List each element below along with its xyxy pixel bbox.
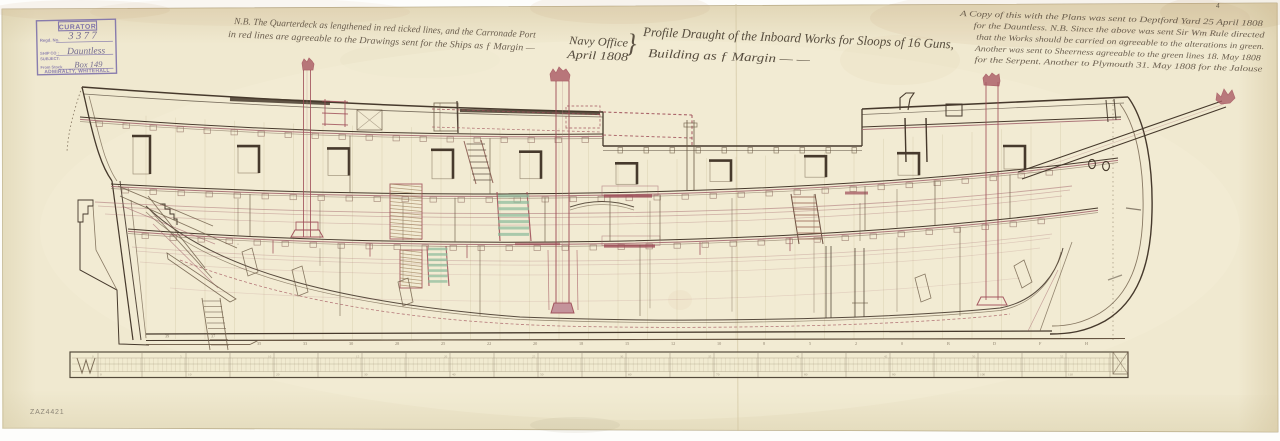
svg-text:55: 55 bbox=[1060, 354, 1064, 358]
svg-text:40: 40 bbox=[452, 373, 456, 377]
svg-text:70: 70 bbox=[716, 373, 720, 377]
svg-text:30: 30 bbox=[620, 354, 624, 358]
svg-text:35: 35 bbox=[257, 341, 261, 346]
svg-text:2: 2 bbox=[855, 341, 857, 346]
svg-text:25: 25 bbox=[441, 341, 445, 346]
svg-text:20: 20 bbox=[444, 354, 448, 358]
svg-text:10: 10 bbox=[268, 354, 272, 358]
svg-text:0: 0 bbox=[100, 373, 102, 377]
svg-text:80: 80 bbox=[804, 373, 808, 377]
svg-text:39: 39 bbox=[165, 334, 169, 339]
svg-text:}: } bbox=[626, 29, 637, 58]
svg-text:H: H bbox=[1085, 341, 1088, 346]
svg-text:4: 4 bbox=[1216, 2, 1220, 10]
svg-text:60: 60 bbox=[628, 373, 632, 377]
svg-text:20: 20 bbox=[276, 373, 280, 377]
svg-text:15: 15 bbox=[625, 341, 629, 346]
svg-text:Regd. No.: Regd. No. bbox=[40, 37, 60, 42]
svg-text:10: 10 bbox=[188, 373, 192, 377]
svg-text:40: 40 bbox=[796, 354, 800, 358]
svg-text:8: 8 bbox=[763, 341, 765, 346]
svg-text:ZAZ4421: ZAZ4421 bbox=[30, 409, 64, 416]
svg-text:10: 10 bbox=[717, 341, 721, 346]
svg-text:Box 149: Box 149 bbox=[74, 59, 103, 70]
svg-text:30: 30 bbox=[364, 373, 368, 377]
svg-text:From Stock: From Stock bbox=[40, 64, 63, 69]
svg-text:35: 35 bbox=[708, 354, 712, 358]
svg-text:33: 33 bbox=[303, 341, 307, 346]
svg-text:3377: 3377 bbox=[67, 31, 99, 43]
svg-text:15: 15 bbox=[356, 354, 360, 358]
svg-text:45: 45 bbox=[884, 354, 888, 358]
svg-text:D: D bbox=[993, 341, 996, 346]
svg-text:110: 110 bbox=[1068, 373, 1073, 377]
svg-text:SUBJECT:: SUBJECT: bbox=[40, 56, 60, 61]
svg-text:22: 22 bbox=[487, 341, 491, 346]
svg-text:18: 18 bbox=[579, 341, 583, 346]
svg-text:90: 90 bbox=[892, 373, 896, 377]
svg-text:0: 0 bbox=[901, 341, 903, 346]
svg-text:Dauntless: Dauntless bbox=[66, 46, 106, 57]
svg-text:100: 100 bbox=[980, 373, 985, 377]
svg-text:B: B bbox=[947, 341, 950, 346]
svg-text:50: 50 bbox=[540, 373, 544, 377]
svg-text:5: 5 bbox=[809, 341, 811, 346]
svg-text:28: 28 bbox=[395, 341, 399, 346]
svg-text:30: 30 bbox=[349, 341, 353, 346]
svg-text:20: 20 bbox=[533, 341, 537, 346]
svg-text:12: 12 bbox=[671, 341, 675, 346]
svg-text:37: 37 bbox=[211, 334, 215, 339]
svg-text:50: 50 bbox=[972, 354, 976, 358]
svg-text:25: 25 bbox=[532, 354, 536, 358]
